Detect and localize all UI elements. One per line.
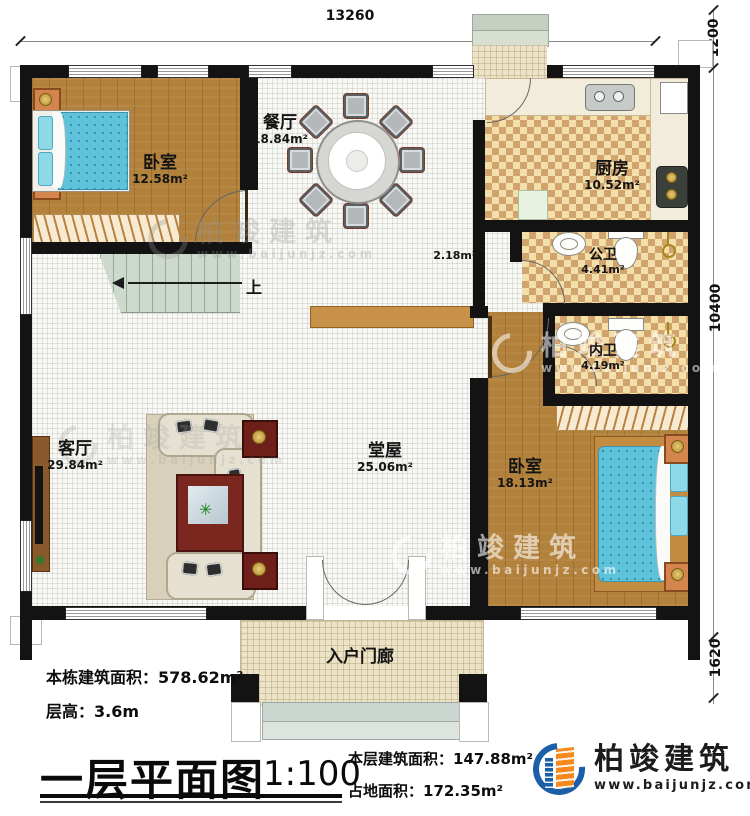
entry-door-frame — [408, 556, 426, 620]
room-label-dining: 餐厅 18.84m² — [220, 114, 340, 146]
sink-bowl — [594, 91, 605, 102]
wall-segment — [688, 65, 700, 660]
room-label-corridor-area: 2.18m² — [420, 250, 490, 262]
dimension-top: 13260 — [300, 8, 400, 24]
room-label-living: 客厅 29.84m² — [20, 440, 130, 472]
window — [65, 607, 207, 620]
side-table-ornament — [252, 562, 266, 576]
bed-sheet — [655, 446, 670, 580]
wall-segment — [20, 242, 252, 254]
nightstand-lamp — [671, 440, 684, 453]
brand-logo-icon — [532, 742, 586, 796]
wall-segment — [470, 378, 488, 606]
wall-segment — [473, 220, 700, 232]
title-underline — [40, 794, 342, 798]
dining-chair — [288, 148, 312, 172]
wall-segment — [473, 120, 485, 318]
room-label-public-bath: 公卫 4.41m² — [558, 248, 648, 276]
room-label-kitchen: 厨房 10.52m² — [552, 160, 672, 192]
sofa-cushion — [181, 561, 198, 576]
dining-chair — [400, 148, 424, 172]
dimension-right-bottom: 1620 — [708, 634, 724, 682]
window — [520, 607, 657, 620]
shower-head — [662, 334, 676, 348]
floor-area: 本层建筑面积：147.88m² — [348, 748, 533, 769]
stairs-direction-line — [128, 282, 242, 284]
footprint-area: 占地面积：172.35m² — [348, 780, 503, 801]
window — [20, 520, 32, 592]
window — [157, 65, 209, 78]
bed-sheet — [52, 112, 66, 188]
dining-chair — [344, 94, 368, 118]
bathroom-sink-bowl — [564, 328, 582, 340]
plant-icon: ✳ — [199, 500, 212, 519]
brand-website: www.baijunjz.com — [594, 778, 750, 793]
wall-segment — [543, 394, 700, 406]
room-label-bedroom2: 卧室 18.13m² — [470, 458, 580, 490]
door-leaf — [245, 190, 248, 242]
stairs-up-label: 上 — [246, 274, 262, 298]
wardrobe — [33, 214, 180, 244]
side-table-ornament — [252, 430, 266, 444]
porch-column-base — [459, 702, 489, 742]
sofa-cushion — [202, 418, 220, 434]
dining-chair — [344, 204, 368, 228]
window — [432, 65, 474, 78]
dining-table-hub — [346, 150, 368, 172]
wall-segment — [470, 306, 488, 318]
logo-tower — [545, 758, 553, 788]
logo-building — [556, 747, 574, 789]
dimension-line-top — [20, 41, 656, 42]
wall-segment — [543, 303, 700, 316]
tv — [35, 466, 43, 544]
room-label-porch: 入户门廊 — [280, 648, 440, 667]
room-label-hall: 堂屋 25.06m² — [330, 442, 440, 474]
room-label-inner-bath: 内卫 4.19m² — [558, 344, 648, 372]
half-wall-ledge — [310, 306, 474, 328]
window — [248, 65, 292, 78]
dimension-right-mid: 10400 — [708, 280, 724, 336]
window — [68, 65, 142, 78]
brand-name: 柏竣建筑 — [594, 745, 750, 775]
plant — [36, 556, 44, 564]
nightstand-lamp — [671, 568, 684, 581]
porch-step — [262, 702, 460, 723]
porch-step — [262, 721, 460, 740]
kitchen-cabinet — [518, 190, 548, 220]
dimension-line-right — [713, 10, 714, 704]
pillow — [38, 152, 53, 186]
kitchen-sink — [585, 84, 635, 111]
stairs-arrow-icon — [112, 277, 124, 289]
wall-segment — [510, 232, 522, 262]
nightstand-lamp — [39, 93, 52, 106]
porch-column — [459, 674, 487, 702]
porch-column-base — [231, 702, 261, 742]
drawing-scale: 1:100 — [263, 754, 361, 794]
entry-door-frame — [306, 556, 324, 620]
shower-head — [662, 244, 676, 258]
floor-height: 层高：3.6m — [46, 698, 139, 722]
drawing-title: 一层平面图 — [40, 746, 265, 808]
sofa-cushion — [175, 419, 193, 434]
floor-plan-canvas: 13260 1200 10400 1620 上 — [0, 0, 750, 816]
room-label-bedroom1: 卧室 12.58m² — [100, 154, 220, 186]
exterior-pier — [678, 40, 713, 68]
back-porch-floor — [472, 45, 547, 78]
title-underline-thin — [40, 801, 342, 803]
sofa-cushion — [205, 562, 223, 577]
sink-bowl — [613, 91, 624, 102]
fridge — [660, 82, 688, 114]
pillow — [38, 116, 53, 150]
window — [562, 65, 655, 78]
pillow — [670, 496, 688, 536]
window — [20, 237, 32, 315]
building-total-area: 本栋建筑面积：578.62m² — [46, 664, 243, 688]
brand-logo: 柏竣建筑 www.baijunjz.com — [532, 742, 750, 796]
